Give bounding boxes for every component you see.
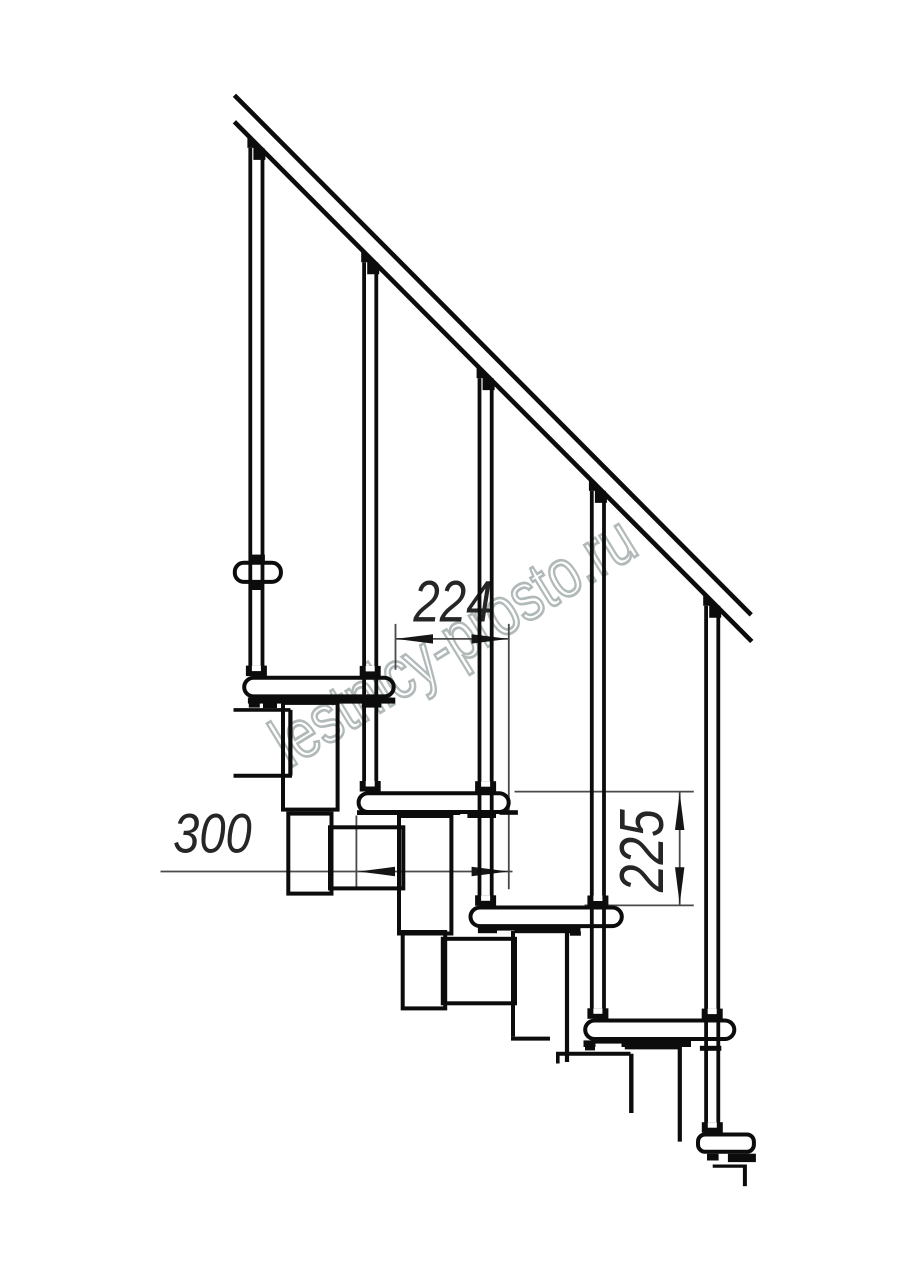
- svg-text:300: 300: [173, 802, 252, 865]
- svg-text:225: 225: [607, 809, 677, 893]
